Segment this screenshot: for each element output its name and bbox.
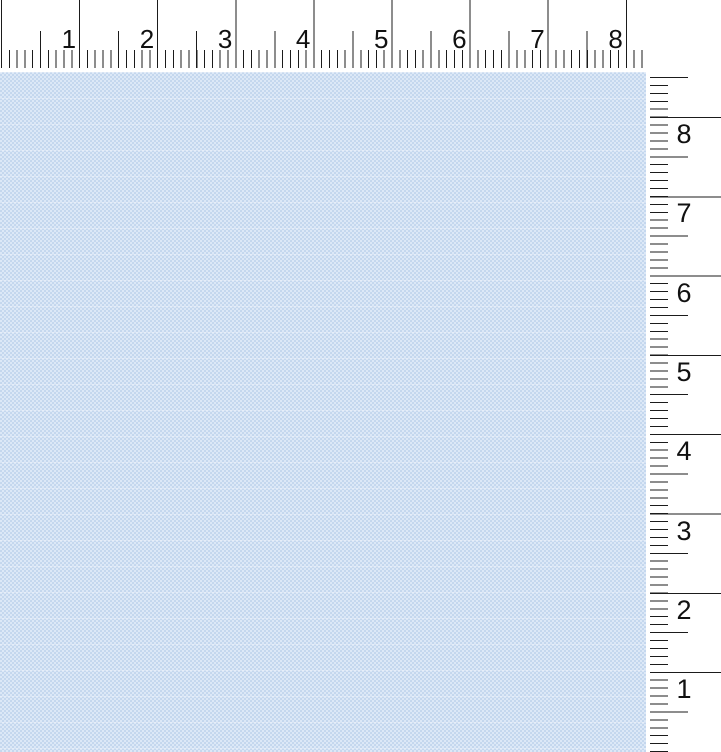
vertical-ruler: 8 7 6 5 4 3 2 1 (646, 71, 721, 752)
horizontal-ruler-label-3: 3 (218, 26, 232, 52)
vertical-ruler-label-7: 7 (671, 200, 697, 227)
horizontal-ruler-tenth-inch-ticks (1, 50, 643, 68)
horizontal-ruler-label-7: 7 (530, 26, 544, 52)
vertical-ruler-label-5: 5 (671, 359, 697, 386)
vertical-ruler-label-3: 3 (671, 518, 697, 545)
vertical-ruler-label-1: 1 (671, 676, 697, 703)
horizontal-ruler-label-6: 6 (452, 26, 466, 52)
horizontal-ruler-label-2: 2 (140, 26, 154, 52)
document-page[interactable] (0, 72, 646, 752)
vertical-ruler-label-6: 6 (671, 280, 697, 307)
vertical-ruler-label-4: 4 (671, 438, 697, 465)
vertical-ruler-label-8: 8 (671, 121, 697, 148)
horizontal-ruler-label-1: 1 (62, 26, 76, 52)
app-window: 1 2 3 4 5 6 7 8 8 7 6 5 4 3 2 1 (0, 0, 721, 752)
horizontal-ruler-label-8: 8 (608, 26, 622, 52)
vertical-ruler-label-2: 2 (671, 597, 697, 624)
horizontal-ruler: 1 2 3 4 5 6 7 8 (0, 0, 721, 71)
horizontal-ruler-label-5: 5 (374, 26, 388, 52)
horizontal-ruler-label-4: 4 (296, 26, 310, 52)
